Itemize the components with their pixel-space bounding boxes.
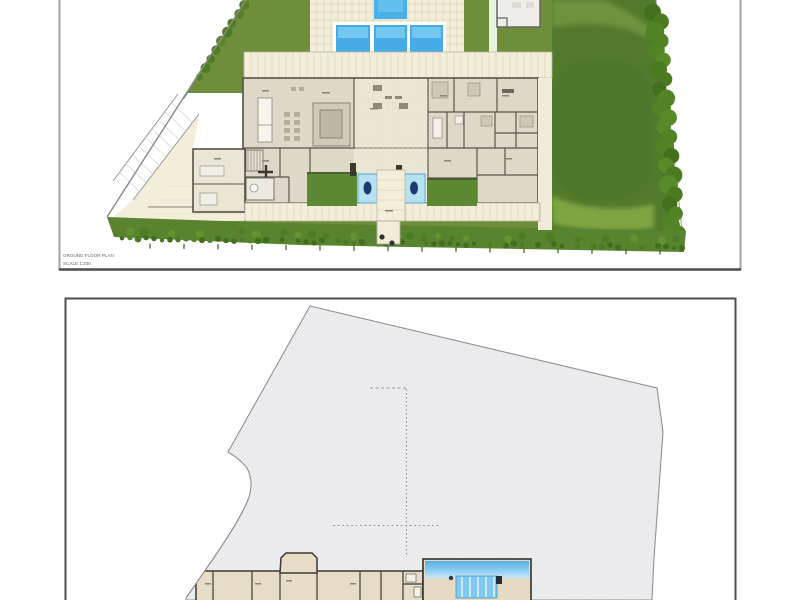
svg-text:GROUND FLOOR PLAN: GROUND FLOOR PLAN [63, 253, 114, 258]
svg-text:SCALE 1:200: SCALE 1:200 [63, 261, 91, 266]
